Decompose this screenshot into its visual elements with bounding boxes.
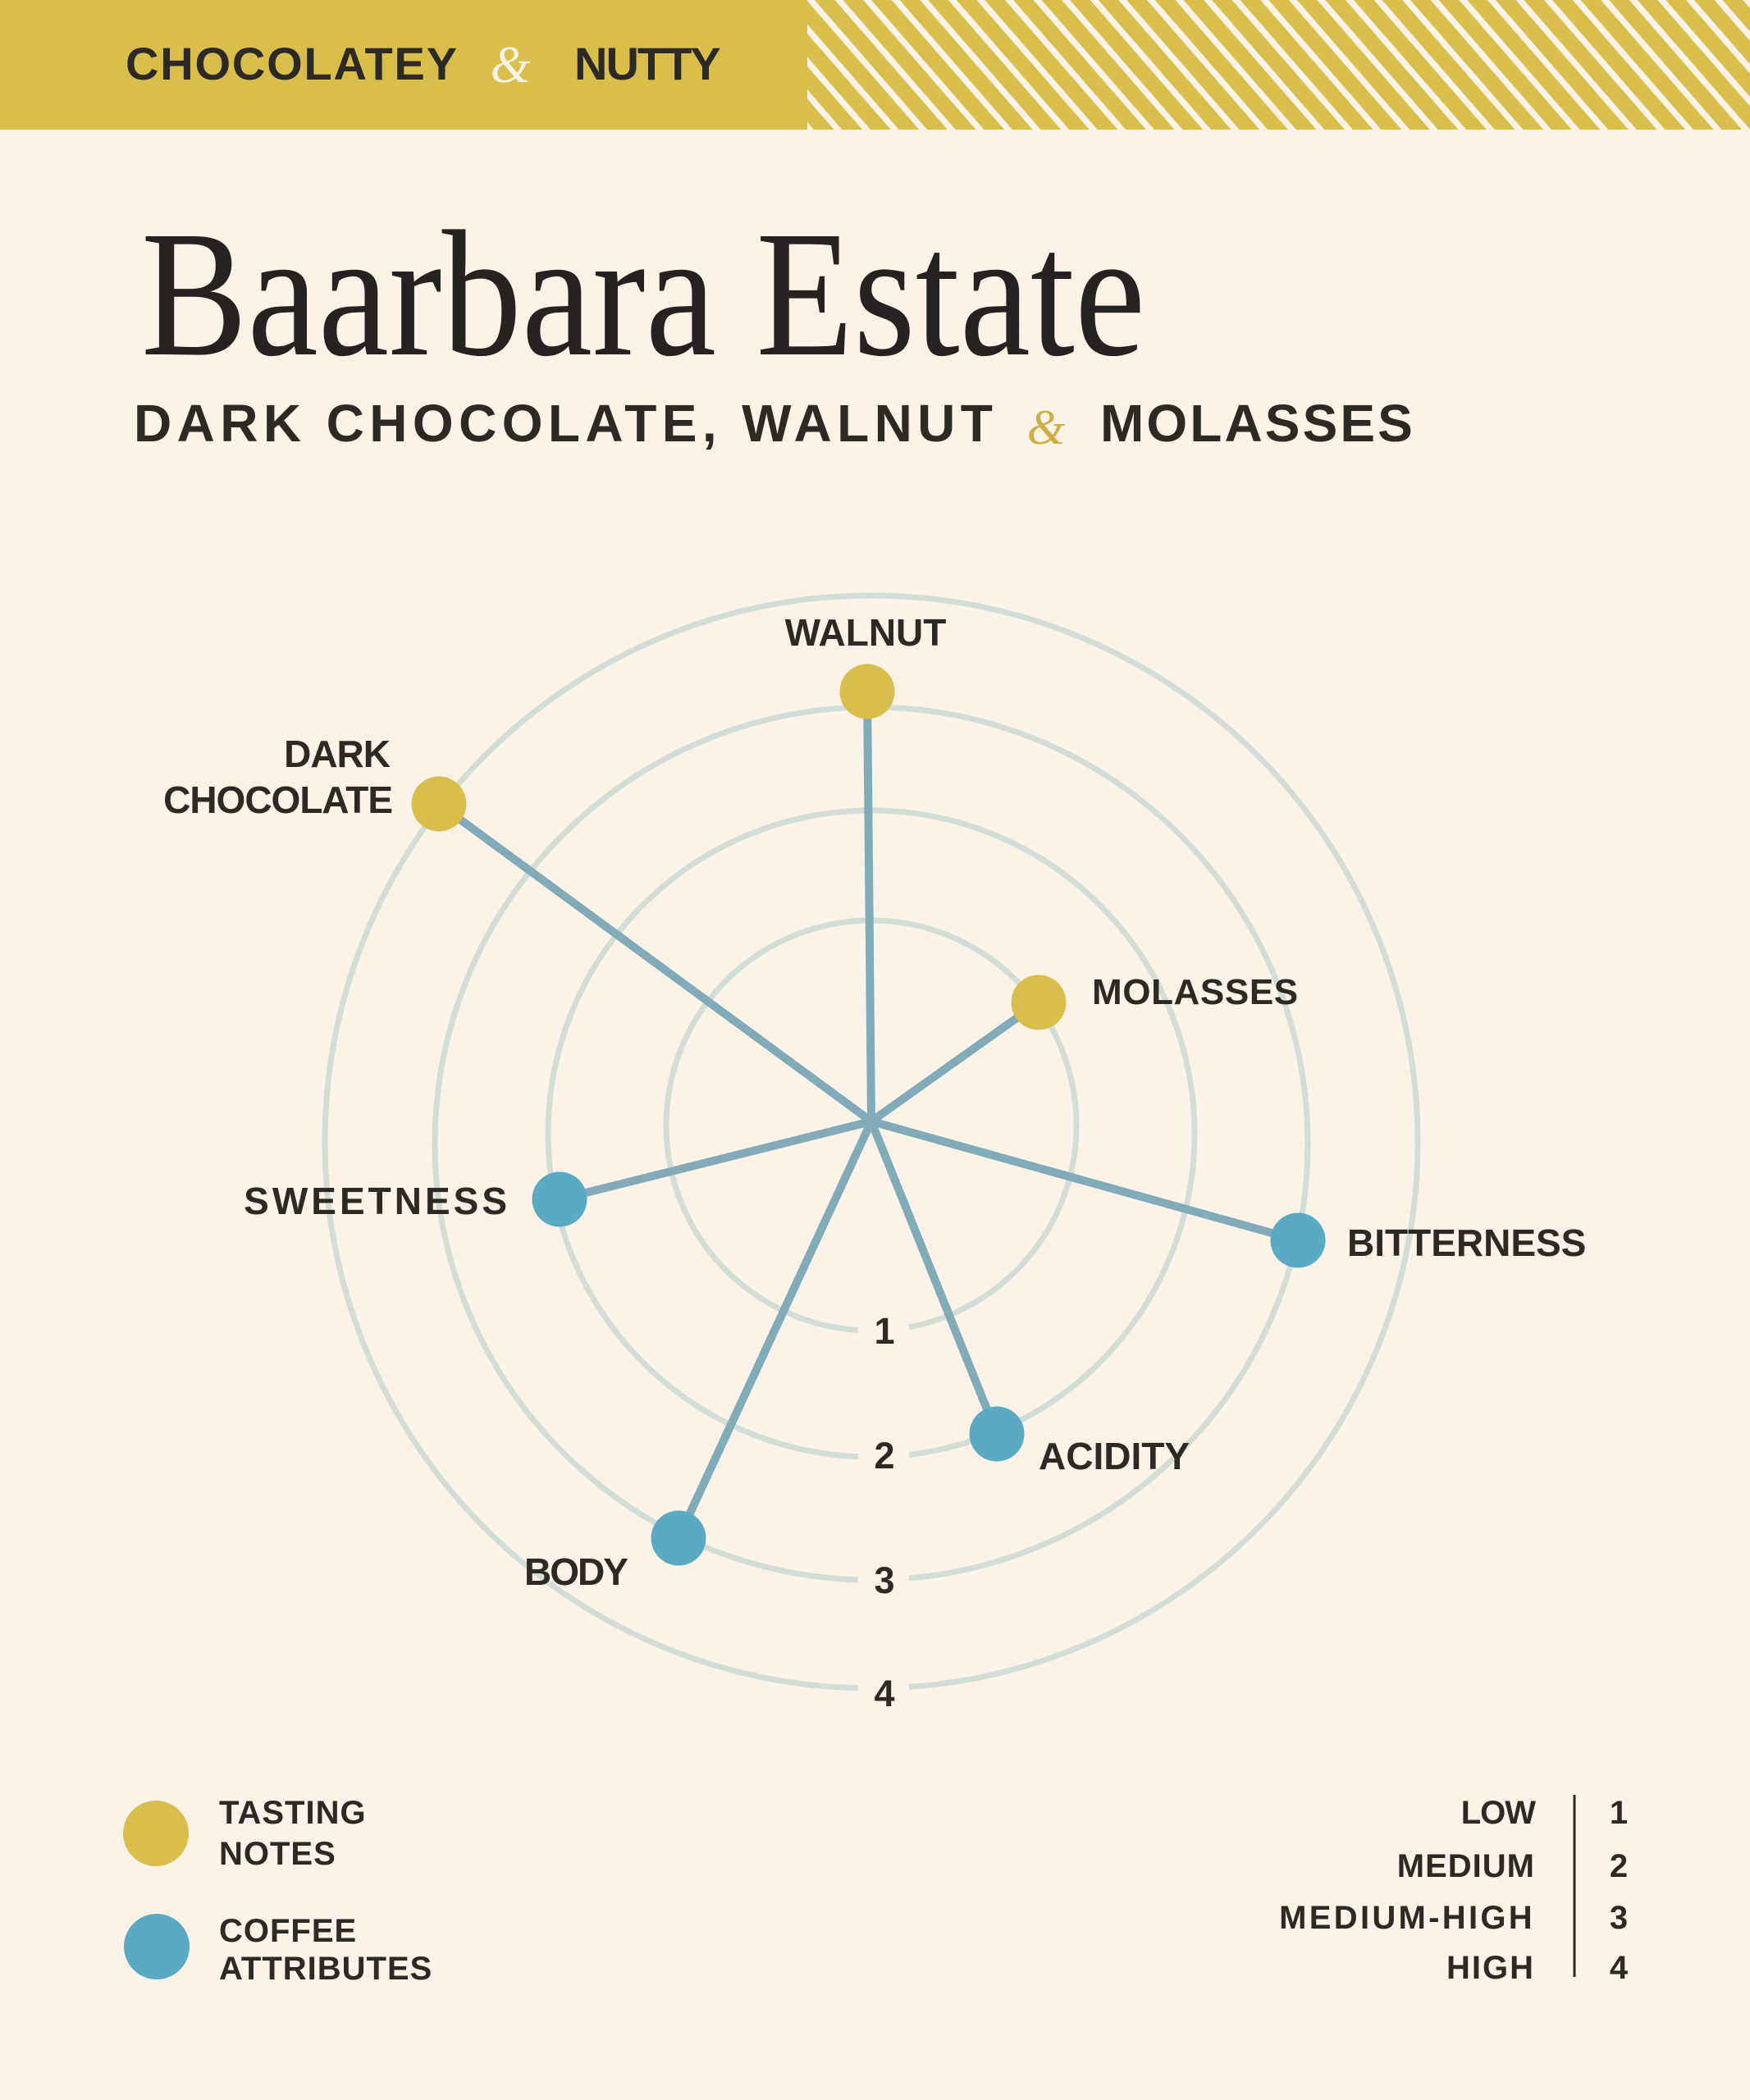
svg-text:1: 1 (874, 1310, 894, 1352)
svg-text:4: 4 (874, 1673, 894, 1714)
svg-text:WALNUT: WALNUT (785, 611, 947, 654)
svg-text:NOTES: NOTES (219, 1836, 336, 1872)
svg-text:4: 4 (1610, 1950, 1629, 1986)
svg-text:&: & (490, 36, 530, 94)
svg-text:BODY: BODY (524, 1550, 628, 1593)
svg-text:ACIDITY: ACIDITY (1039, 1435, 1190, 1477)
svg-text:MEDIUM: MEDIUM (1397, 1848, 1535, 1884)
svg-text:DARK CHOCOLATE, WALNUT: DARK CHOCOLATE, WALNUT (134, 394, 998, 453)
svg-text:1: 1 (1610, 1795, 1628, 1831)
svg-text:3: 3 (874, 1559, 894, 1601)
svg-text:NUTTY: NUTTY (574, 38, 720, 89)
svg-text:2: 2 (1610, 1848, 1628, 1884)
svg-text:COFFEE: COFFEE (219, 1913, 357, 1949)
svg-text:MOLASSES: MOLASSES (1092, 972, 1299, 1012)
svg-text:3: 3 (1610, 1900, 1628, 1936)
svg-text:2: 2 (874, 1435, 894, 1477)
svg-text:MEDIUM-HIGH: MEDIUM-HIGH (1279, 1900, 1535, 1936)
svg-text:&: & (1027, 400, 1066, 454)
svg-text:MOLASSES: MOLASSES (1100, 394, 1415, 453)
svg-text:BITTERNESS: BITTERNESS (1347, 1221, 1586, 1264)
svg-text:DARK: DARK (284, 733, 391, 775)
svg-text:CHOCOLATE: CHOCOLATE (163, 778, 392, 821)
svg-text:TASTING: TASTING (219, 1795, 367, 1831)
svg-text:LOW: LOW (1461, 1795, 1537, 1831)
svg-text:HIGH: HIGH (1446, 1950, 1535, 1986)
svg-text:ATTRIBUTES: ATTRIBUTES (219, 1951, 432, 1987)
svg-text:SWEETNESS: SWEETNESS (244, 1180, 510, 1222)
svg-text:Baarbara Estate: Baarbara Estate (141, 194, 1145, 394)
svg-text:CHOCOLATEY: CHOCOLATEY (126, 38, 459, 89)
